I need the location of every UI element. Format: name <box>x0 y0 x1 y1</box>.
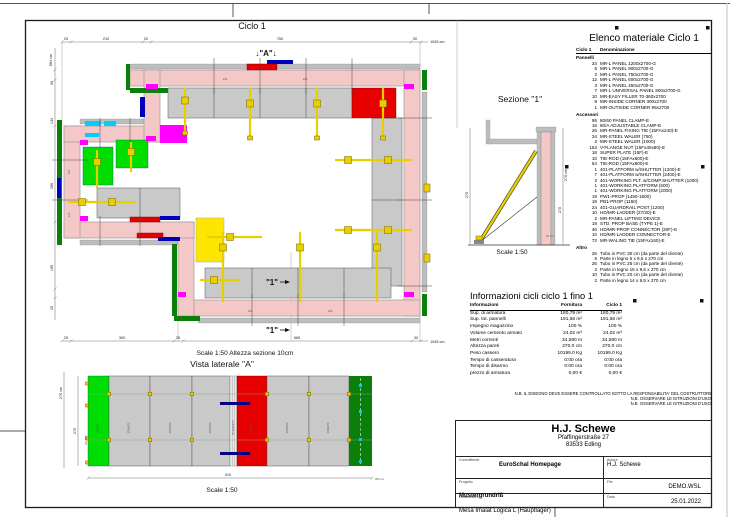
svg-text:1045 cm: 1045 cm <box>430 340 445 344</box>
company-name: H.J. Schewe <box>456 423 711 435</box>
material-row: 1 MR-OUTSIDE CORNER 95x2700 <box>576 105 712 110</box>
vista-drawing: Vista laterale "A" <box>59 359 385 494</box>
cycle-info-rows: Sup. di armatura 180,79 m² 180,79 m² Sup… <box>470 311 622 378</box>
material-name: MR-OUTSIDE CORNER 95x2700 <box>600 105 712 110</box>
svg-text:Alt. 270: Alt. 270 <box>84 435 88 445</box>
sezione-drawing: Sezione "1" 270 cm 270 270 20 cm Sca <box>465 94 570 256</box>
title-block-row-committente: Committente EuroSchal Homepage Autore H.… <box>456 457 711 479</box>
info-fornitura-value: 10199,0 Kg <box>536 351 582 358</box>
sezione-wall <box>537 132 555 245</box>
svg-text:664 cm: 664 cm <box>49 54 53 66</box>
info-ciclo-value: 100 % <box>582 324 622 331</box>
svg-text:20 cm: 20 cm <box>546 234 554 238</box>
material-row: 2 Parte in legno 14 x 9,5 x 270 cm <box>576 278 712 283</box>
vista-panels <box>88 376 372 466</box>
info-ciclo-value: 10199,0 Kg <box>582 351 622 358</box>
material-row: 72 MR-WALING TIE (15FAx160)-E <box>576 238 712 243</box>
svg-text:280: 280 <box>50 183 54 189</box>
column-header-qty: Ciclo 1 <box>576 47 600 52</box>
material-list-title: Elenco materiale Ciclo 1 <box>576 33 712 44</box>
material-rows-altro: 26 Tubo in PVC 30 cm (da parte del clien… <box>576 251 712 284</box>
svg-text:270 cm: 270 cm <box>59 387 63 399</box>
company-address-2: 83533 Edling <box>456 442 711 449</box>
svg-text:120x270: 120x270 <box>127 422 131 433</box>
vista-title: Vista laterale "A" <box>190 359 254 369</box>
sezione-title: Sezione "1" <box>498 94 542 104</box>
svg-text:20: 20 <box>144 37 148 41</box>
svg-text:760: 760 <box>277 37 283 41</box>
svg-text:300: 300 <box>119 336 125 340</box>
svg-text:950 cm: 950 cm <box>375 477 385 481</box>
svg-text:270: 270 <box>73 428 77 434</box>
data-cell: Data 25.01.2022 <box>604 494 711 508</box>
sezione-scale: Scale 1:50 <box>496 249 527 256</box>
svg-text:25: 25 <box>50 306 54 310</box>
drawing-sheet: { "colors":{ "wall_pink":"#f5c8c8", "pan… <box>0 0 730 517</box>
title-block-row-progetto: Progetto Mustergrundriß File DEMO.WSL <box>456 479 711 494</box>
section-a-marker: ↓"A"↓ <box>255 49 276 58</box>
title-block-row-casseratura: Casseratura Mesa Imalat Logica L (Hauptl… <box>456 494 711 508</box>
section-1-marker: "1" <box>266 278 278 287</box>
svg-text:270: 270 <box>558 207 562 213</box>
svg-text:90x270: 90x270 <box>96 423 100 433</box>
info-fornitura-value: 270,0 cm <box>536 344 582 351</box>
svg-text:30: 30 <box>50 81 54 85</box>
svg-text:120x270: 120x270 <box>208 422 212 433</box>
cycle-info-row: Altezza pareti 270,0 cm 270,0 cm <box>470 344 622 351</box>
material-qty: 72 <box>576 238 600 243</box>
committente-cell: Committente EuroSchal Homepage <box>456 457 604 478</box>
plan-title: Ciclo 1 <box>238 21 266 31</box>
svg-text:25: 25 <box>176 336 180 340</box>
cycle-info-title: Informazioni cicli ciclo 1 fino 1 <box>470 291 622 301</box>
col-fornitura: Fornitura <box>536 303 582 310</box>
svg-text:90x270: 90x270 <box>358 423 362 433</box>
svg-text:90x270: 90x270 <box>249 423 253 433</box>
info-label: Volume cemento armato <box>470 331 536 338</box>
svg-text:120: 120 <box>67 169 71 174</box>
cycle-info-row: Volume cemento armato 24,02 m³ 24,02 m³ <box>470 331 622 338</box>
autore-value: H.J. Schewe <box>607 462 709 468</box>
svg-text:270 cm: 270 cm <box>564 169 568 181</box>
file-value: DEMO.WSL <box>668 484 701 490</box>
progetto-label: Progetto <box>459 480 601 484</box>
sezione-prop <box>474 151 537 244</box>
plan-drawing: Ciclo 1 <box>49 20 457 357</box>
casseratura-value: Mesa Imalat Logica L (Hauptlager) <box>459 508 551 514</box>
svg-text:30: 30 <box>414 336 418 340</box>
cycle-info-row: Impegno magazzino 100 % 100 % <box>470 324 622 331</box>
svg-text:25: 25 <box>64 336 68 340</box>
col-informazioni: Informazioni <box>470 303 536 310</box>
svg-text:120: 120 <box>248 309 253 313</box>
autore-cell: Autore H.J. Schewe <box>604 457 711 478</box>
casseratura-label: Casseratura <box>459 495 601 499</box>
info-ciclo-value: 24,02 m³ <box>582 331 622 338</box>
info-fornitura-value: 100 % <box>536 324 582 331</box>
col-ciclo1: Ciclo 1 <box>582 303 622 310</box>
svg-text:665: 665 <box>294 336 300 340</box>
title-block-company: H.J. Schewe Pfaffingerstraße 27 83533 Ed… <box>456 421 711 457</box>
section-1-marker-2: "1" <box>266 326 278 335</box>
info-label: Altezza pareti <box>470 344 536 351</box>
material-rows-accessori: 95 80/60 PANEL CLAMP-E 16 80/A ADJUSTABL… <box>576 118 712 243</box>
svg-text:120x270: 120x270 <box>168 422 172 433</box>
info-label: Peso cassero <box>470 351 536 358</box>
svg-text:910: 910 <box>225 473 231 477</box>
svg-text:120: 120 <box>67 212 71 217</box>
material-list-header: Ciclo 1 Denominazione <box>576 47 712 54</box>
svg-text:120: 120 <box>328 309 333 313</box>
svg-text:120: 120 <box>303 77 308 81</box>
svg-text:25: 25 <box>64 37 68 41</box>
title-block: H.J. Schewe Pfaffingerstraße 27 83533 Ed… <box>455 420 712 508</box>
svg-text:270: 270 <box>465 192 469 198</box>
material-qty: 2 <box>576 278 600 283</box>
material-qty: 1 <box>576 105 600 110</box>
casseratura-cell: Casseratura Mesa Imalat Logica L (Hauptl… <box>456 494 604 508</box>
info-fornitura-value: 0,00 € <box>536 371 582 378</box>
svg-text:210: 210 <box>103 37 109 41</box>
cycle-info-row: prezzo di armatura 0,00 € 0,00 € <box>470 371 622 378</box>
material-name: Parte in legno 14 x 9,5 x 270 cm <box>600 278 712 283</box>
committente-value: EuroSchal Homepage <box>459 462 601 468</box>
cycle-info-table: Informazioni cicli ciclo 1 fino 1 Inform… <box>470 291 622 378</box>
company-address-1: Pfaffingerstraße 27 <box>456 435 711 442</box>
svg-text:120: 120 <box>223 77 228 81</box>
vista-scale: Scale 1:50 <box>206 487 237 494</box>
nb-notes: N.B. IL DISEGNO DEVE ESSERE CONTROLLATO … <box>452 391 712 406</box>
info-fornitura-value: 24,02 m³ <box>536 331 582 338</box>
material-rows-pannelli: 34 MR-L PANEL 1200x2700-G 6 MR-L PANEL 9… <box>576 61 712 110</box>
info-ciclo-value: 0,00 € <box>582 371 622 378</box>
cycle-info-header: Informazioni Fornitura Ciclo 1 <box>470 303 622 311</box>
svg-text:1045 cm: 1045 cm <box>430 40 445 44</box>
svg-text:120x270: 120x270 <box>326 422 330 433</box>
nb-note-line: N.B. OSSERVARE LE ISTRUZIONI D'USO! <box>452 401 712 406</box>
info-label: Impegno magazzino <box>470 324 536 331</box>
plan-scale-note: Scale 1:50 Altezza sezione 10cm <box>197 350 294 357</box>
material-list: Elenco materiale Ciclo 1 Ciclo 1 Denomin… <box>576 33 712 283</box>
cycle-info-row: Peso cassero 10199,0 Kg 10199,0 Kg <box>470 351 622 358</box>
column-header-name: Denominazione <box>600 47 712 52</box>
material-name: MR-WALING TIE (15FAx160)-E <box>600 238 712 243</box>
svg-text:120x270: 120x270 <box>285 422 289 433</box>
info-label: prezzo di armatura <box>470 371 536 378</box>
svg-text:195: 195 <box>50 265 54 271</box>
progetto-cell: Progetto Mustergrundriß <box>456 479 604 493</box>
svg-text:134: 134 <box>50 118 54 124</box>
svg-text:30: 30 <box>413 37 417 41</box>
data-value: 25.01.2022 <box>671 499 701 505</box>
file-cell: File DEMO.WSL <box>604 479 711 493</box>
svg-text:70-360x270: 70-360x270 <box>231 420 235 435</box>
info-ciclo-value: 270,0 cm <box>582 344 622 351</box>
